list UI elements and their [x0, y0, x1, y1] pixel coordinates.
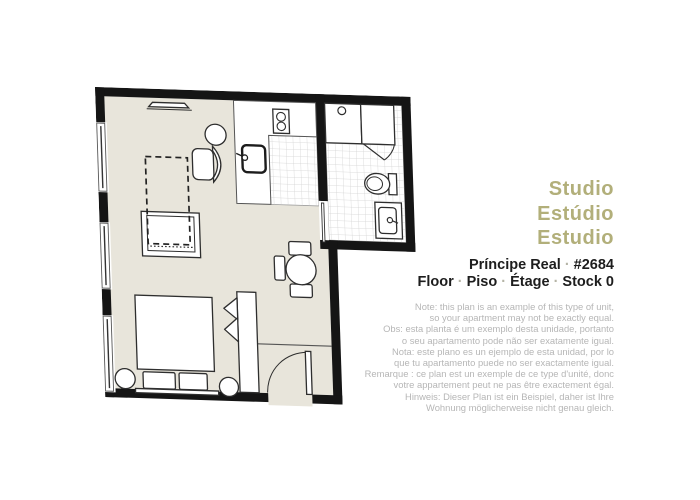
dot-separator: ·: [497, 274, 510, 290]
pillow-left: [143, 372, 176, 390]
title-line-es: Estudio: [537, 226, 614, 251]
unit-info: Príncipe Real·#2684 Floor·Piso·Étage·Sto…: [418, 257, 615, 290]
neighborhood-label: Príncipe Real: [469, 257, 561, 273]
floor-label-en: Floor: [418, 274, 454, 290]
note-line: Hinweis: Dieser Plan ist ein Beispiel, d…: [365, 391, 614, 402]
note-line: votre appartement peut ne pas être exact…: [365, 379, 614, 390]
bathroom-vanity: [375, 202, 403, 239]
disclaimer-note: Note: this plan is an example of this ty…: [365, 301, 614, 413]
note-line: o seu apartamento pode não ser exatament…: [365, 335, 614, 346]
floor-label-fr: Étage: [510, 274, 550, 290]
stove: [273, 109, 290, 134]
note-line: Note: this plan is an example of this ty…: [365, 301, 614, 312]
door-leaf: [305, 351, 312, 394]
note-line: Wohnung möglicherweise nicht genau gleic…: [365, 402, 614, 413]
kitchen-floor-tiles: [269, 135, 319, 206]
note-line: Nota: este plano es un ejemplo de esta u…: [365, 346, 614, 357]
faucet-icon: [387, 217, 392, 222]
toilet: [364, 173, 397, 195]
note-line: Obs: esta planta é um exemplo desta unid…: [365, 323, 614, 334]
mattress: [135, 295, 215, 371]
dining-chair-top: [289, 241, 311, 255]
shower: [325, 103, 362, 144]
title-line-en: Studio: [537, 177, 614, 202]
dining-chair-bottom: [290, 284, 312, 298]
toilet-bowl: [364, 173, 390, 194]
title-line-pt: Estúdio: [537, 202, 614, 227]
shower-panel: [361, 104, 395, 145]
nightstand-left: [115, 368, 136, 389]
dot-separator: ·: [561, 257, 574, 273]
shower-head-icon: [338, 107, 346, 115]
unit-number: #2684: [574, 257, 614, 273]
note-line: que tu apartamento puede no ser exactame…: [365, 357, 614, 368]
bed: [132, 295, 218, 395]
unit-type-title: Studio Estúdio Estudio: [537, 177, 614, 251]
dot-separator: ·: [454, 274, 467, 290]
unit-floor-line: Floor·Piso·Étage·Stock 0: [418, 274, 615, 291]
window-3: [101, 315, 116, 392]
nightstand-right: [219, 377, 239, 397]
sliding-door: [319, 201, 329, 242]
unit-location-line: Príncipe Real·#2684: [418, 257, 615, 274]
floor-label-pt: Piso: [467, 274, 498, 290]
pillow-right: [179, 373, 208, 390]
sofa: [141, 211, 201, 257]
window-2: [98, 222, 112, 289]
floor-value: Stock 0: [562, 274, 614, 290]
note-line: Remarque : ce plan est un exemple de ce …: [365, 368, 614, 379]
round-side-table: [205, 124, 227, 146]
dot-separator: ·: [550, 274, 563, 290]
window-1: [95, 122, 109, 192]
dining-chair-left: [274, 256, 285, 280]
note-line: so your apartment may not be exactly equ…: [365, 312, 614, 323]
